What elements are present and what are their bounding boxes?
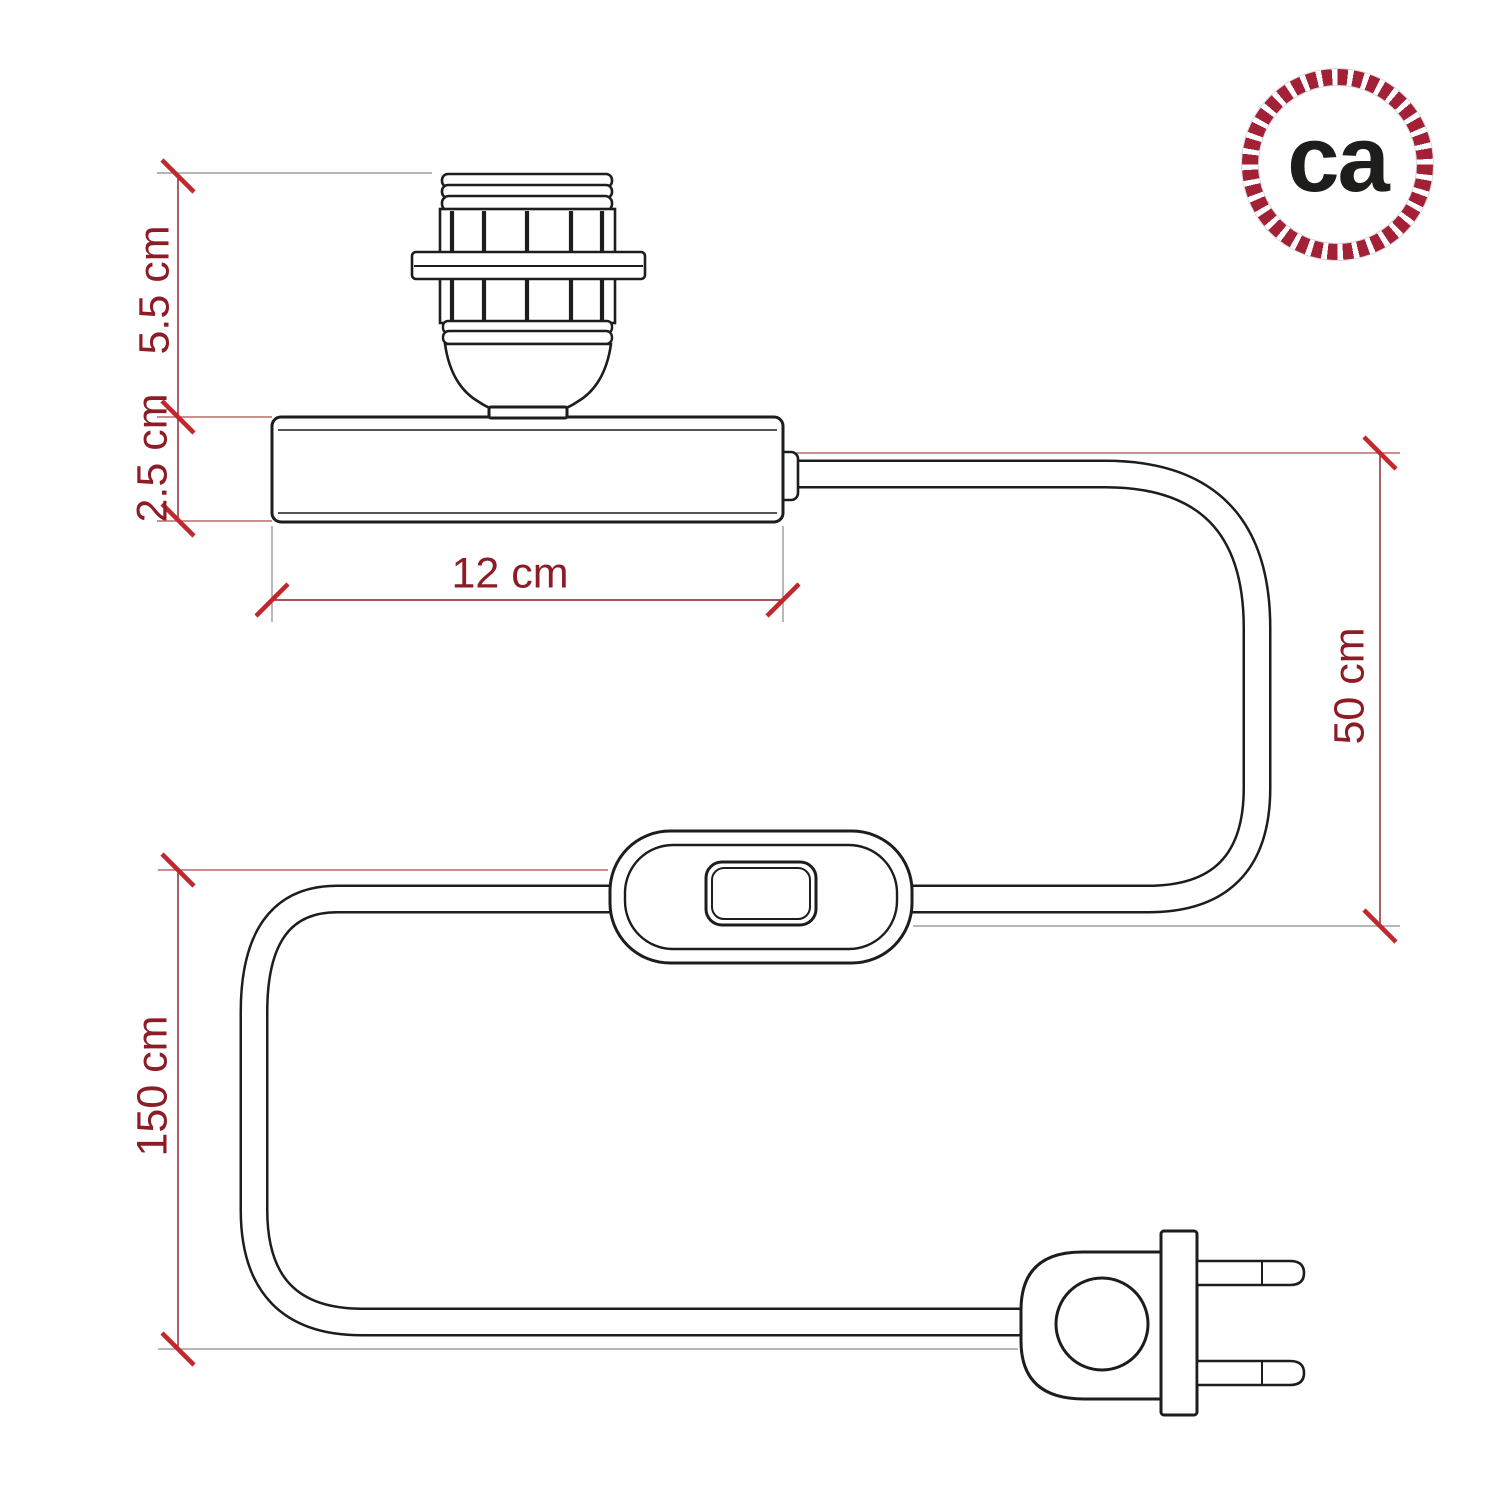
plug-body-circle	[1056, 1278, 1148, 1370]
dimension-label-base-height: 2.5 cm	[132, 393, 175, 522]
dimension-lines	[178, 176, 1380, 1349]
rope-circle-logo-icon: ca	[1242, 69, 1433, 260]
dimension-extension-lines	[157, 173, 1400, 1349]
power-plug	[1021, 1231, 1304, 1415]
base-cylinder	[272, 417, 783, 522]
inline-switch	[610, 831, 912, 963]
dimension-label-cable-total: 150 cm	[132, 1015, 175, 1156]
technical-drawing-page: 5.5 cm 2.5 cm 12 cm 50 cm 150 cm ca	[0, 0, 1500, 1500]
dimension-label-cable-riser: 50 cm	[1329, 627, 1372, 744]
dimension-label-socket-height: 5.5 cm	[134, 225, 177, 354]
logo-text: ca	[1287, 112, 1388, 206]
socket-dome-cup	[445, 344, 611, 410]
lamp-base	[272, 417, 798, 522]
plug-prong-bottom	[1197, 1361, 1304, 1385]
logo-inner-disc: ca	[1259, 86, 1416, 243]
plug-face-plate	[1161, 1231, 1197, 1415]
dimension-ticks	[162, 160, 1396, 1365]
lamp-socket	[412, 174, 645, 418]
socket-neck	[489, 407, 567, 418]
socket-lower-thread-ridge	[443, 331, 612, 344]
plug-prong-top	[1197, 1261, 1304, 1285]
dimension-label-base-width: 12 cm	[451, 553, 568, 596]
switch-rocker-button	[706, 862, 816, 925]
